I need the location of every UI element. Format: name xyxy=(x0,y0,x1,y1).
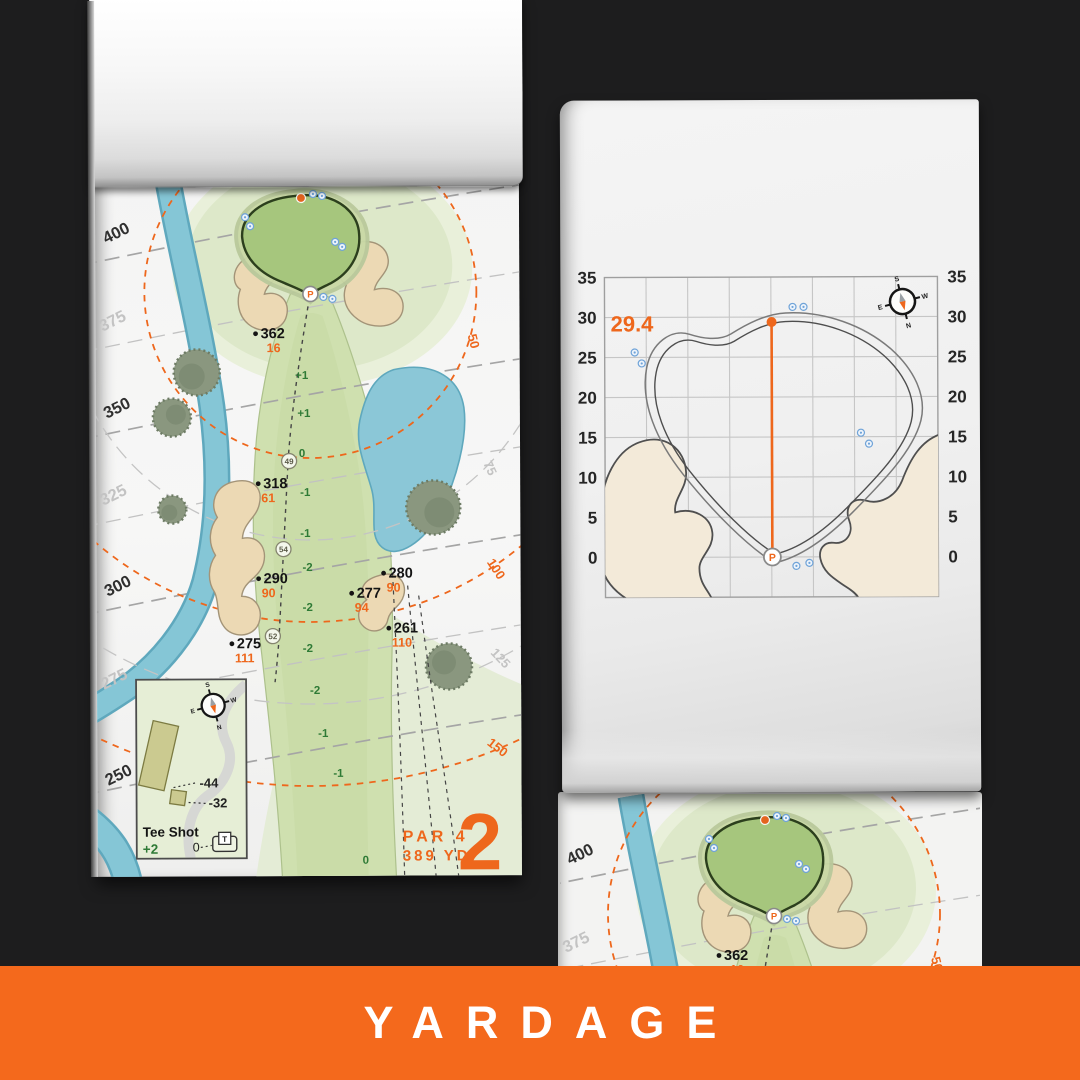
svg-text:25: 25 xyxy=(948,347,967,366)
svg-text:35: 35 xyxy=(947,267,966,286)
green-detail-page: P 29.4 35 30 25 20 15 10 5 0 xyxy=(560,99,981,792)
flipped-page-back[interactable] xyxy=(89,0,523,188)
depth-dot xyxy=(767,317,777,327)
svg-text:0: 0 xyxy=(948,547,958,566)
hole-map-svg xyxy=(94,185,522,877)
svg-text:15: 15 xyxy=(578,429,597,448)
yardage-banner: YARDAGE xyxy=(0,966,1080,1080)
svg-text:30: 30 xyxy=(948,307,967,326)
left-book-page xyxy=(93,0,522,877)
svg-text:10: 10 xyxy=(948,467,967,486)
svg-text:0: 0 xyxy=(588,549,598,568)
next-page-map-svg xyxy=(560,794,980,968)
svg-text:5: 5 xyxy=(588,509,598,528)
green-detail-svg: P 29.4 35 30 25 20 15 10 5 0 xyxy=(560,99,981,792)
axis-ticks-left: 35 30 25 20 15 10 5 0 xyxy=(577,269,597,568)
svg-text:10: 10 xyxy=(578,469,597,488)
svg-text:20: 20 xyxy=(948,387,967,406)
pin-label: P xyxy=(769,552,776,564)
yardage-book-scene: P 29.4 35 30 25 20 15 10 5 0 xyxy=(0,0,1080,1080)
svg-text:30: 30 xyxy=(578,309,597,328)
svg-text:5: 5 xyxy=(948,507,958,526)
green-depth-value: 29.4 xyxy=(611,311,655,336)
svg-text:25: 25 xyxy=(578,349,597,368)
svg-text:20: 20 xyxy=(578,389,597,408)
banner-title: YARDAGE xyxy=(342,997,739,1049)
next-page-peek[interactable] xyxy=(558,792,982,968)
svg-text:35: 35 xyxy=(577,269,596,288)
svg-text:15: 15 xyxy=(948,427,967,446)
pin-depth-line: P xyxy=(763,317,781,566)
axis-ticks-right: 35 30 25 20 15 10 5 0 xyxy=(947,267,967,566)
